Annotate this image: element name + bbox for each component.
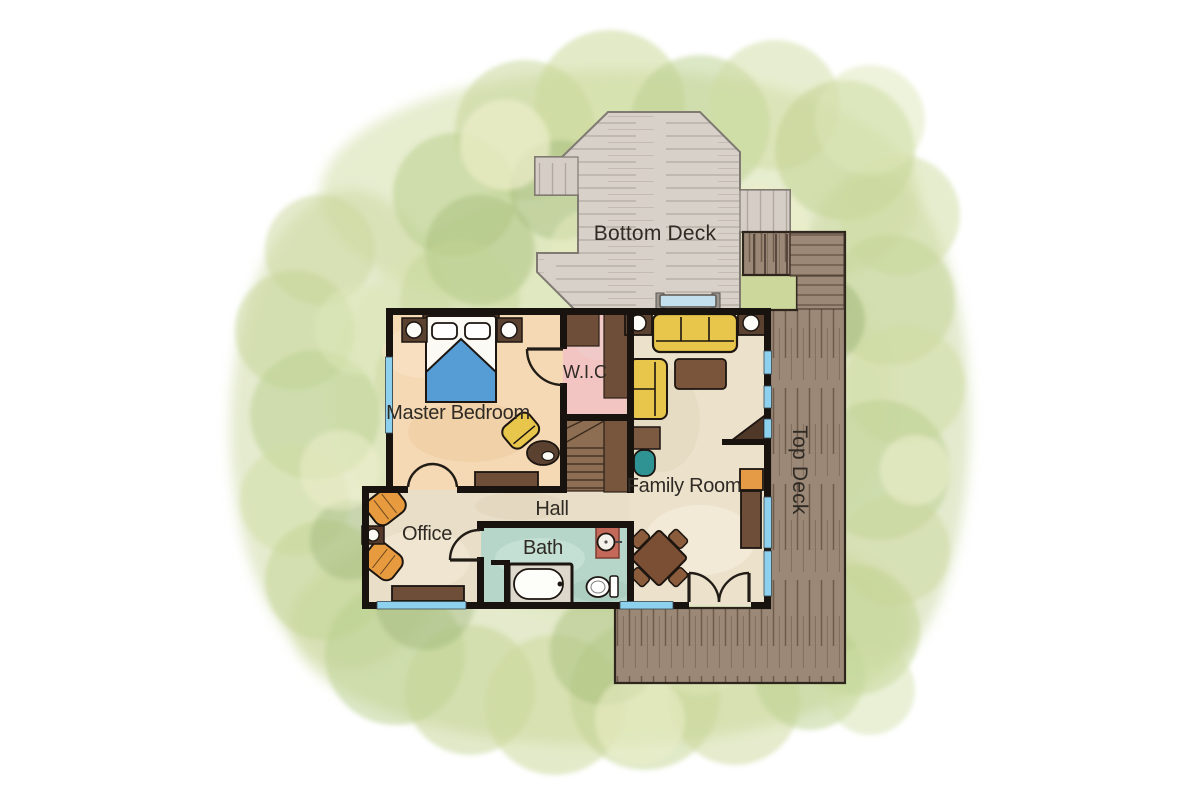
wall-left-lower [362, 486, 369, 609]
label-bath: Bath [523, 537, 563, 559]
wall-bath-closet [504, 560, 510, 604]
label-top-deck: Top Deck [788, 425, 811, 514]
lamp [406, 322, 422, 338]
wall-wic-left-b [560, 383, 567, 493]
desk [633, 427, 660, 449]
window-family-bottom [620, 602, 673, 610]
wall-top [386, 308, 771, 315]
coffee-table [675, 359, 726, 389]
label-hall: Hall [535, 498, 568, 520]
lawn-cutout [741, 274, 799, 312]
wall-stairs-top [560, 414, 634, 421]
cabinet-orange [740, 469, 763, 490]
dresser [475, 472, 538, 488]
wall-bath-left-b [477, 557, 484, 609]
desk-chair [634, 450, 655, 476]
bed-pillow [465, 323, 490, 339]
wall-stub-family [722, 439, 771, 445]
window-family-right-1 [764, 351, 772, 374]
tub-faucet [558, 582, 563, 587]
lamp [743, 315, 759, 331]
deck-planks-corner [790, 233, 844, 276]
deck-bench [656, 293, 720, 310]
lamp [501, 322, 517, 338]
label-bottom-deck: Bottom Deck [594, 222, 717, 245]
window-family-right-4 [764, 497, 772, 548]
wall-family-left [627, 308, 634, 493]
staircase [563, 416, 629, 492]
bed-pillow [432, 323, 457, 339]
deck-side-steps-right [740, 190, 790, 232]
office-desk [392, 586, 464, 601]
sink-drain [604, 540, 607, 543]
label-family-room: Family Room [627, 475, 742, 497]
bathtub [514, 569, 563, 599]
wall-bath-closet-stub [491, 560, 506, 565]
wall-master-bottom-b [457, 486, 567, 493]
wall-bottom-right [751, 602, 771, 609]
label-office: Office [402, 523, 452, 545]
deck-side-steps-left [535, 157, 578, 195]
ottoman-cushion [542, 452, 554, 461]
sofa [653, 314, 737, 352]
deck-planks-side [797, 276, 844, 309]
wall-bath-top [477, 521, 634, 528]
stairs-rail [604, 416, 629, 492]
label-master-bedroom: Master Bedroom [386, 402, 530, 424]
sideboard [741, 491, 761, 548]
closet-shelf-top [563, 313, 599, 346]
bench-seat [660, 295, 716, 307]
window-family-right-3 [764, 419, 772, 438]
label-wic: W.I.C [563, 362, 607, 382]
wall-master-bottom-a [386, 486, 408, 493]
floorplan-page: Bottom Deck Top Deck [0, 0, 1200, 800]
window-family-right-2 [764, 386, 772, 408]
wall-bath-right [627, 521, 634, 609]
wall-wic-left-a [560, 308, 567, 349]
toilet-bowl [587, 577, 610, 597]
window-office-bottom [377, 602, 466, 610]
window-family-right-5 [764, 551, 772, 596]
floor-plan-canvas: Bottom Deck Top Deck [0, 0, 1200, 800]
toilet-tank [610, 576, 618, 597]
